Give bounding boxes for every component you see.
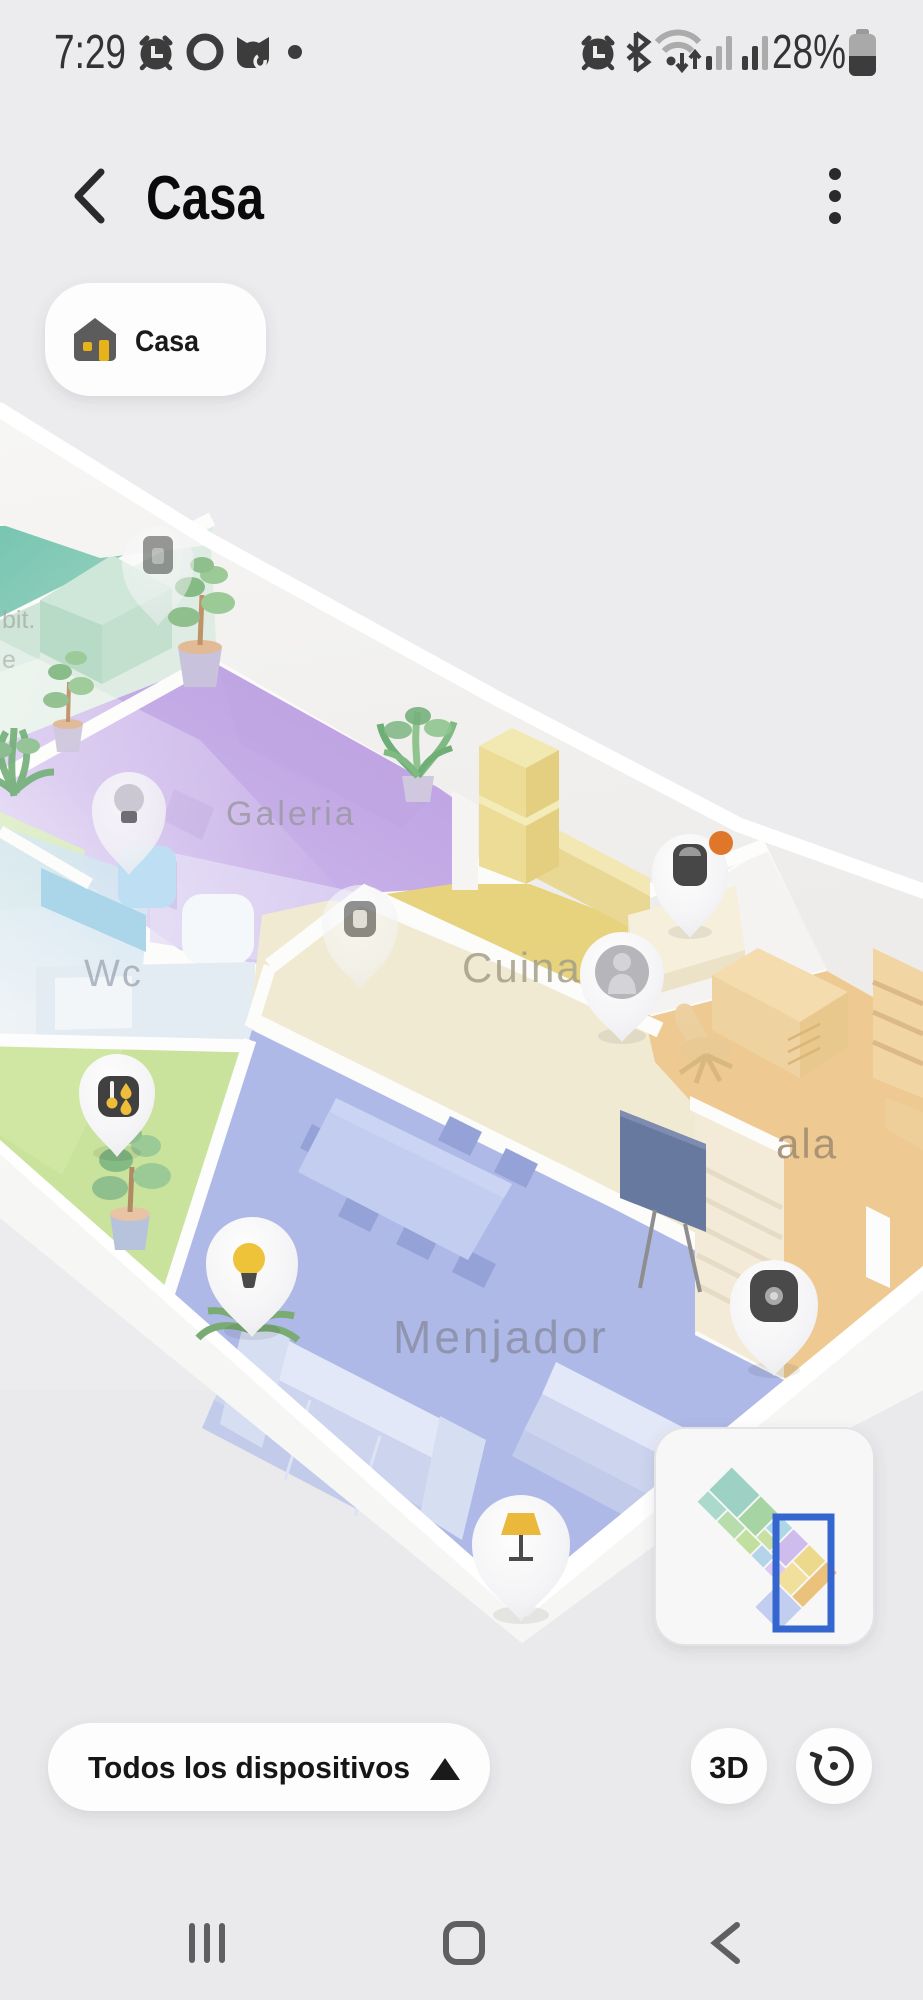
svg-text:Casa: Casa [135,325,199,358]
svg-text:Wc: Wc [84,953,143,995]
svg-text:Galeria: Galeria [226,795,357,833]
svg-text:Menjador: Menjador [393,1311,609,1363]
svg-text:Casa: Casa [146,164,264,233]
svg-text:ala: ala [776,1120,838,1167]
svg-text:7:29: 7:29 [54,26,126,79]
svg-text:3D: 3D [709,1750,749,1785]
svg-text:e: e [2,646,16,674]
svg-text:Cuina: Cuina [462,944,582,991]
svg-text:28%: 28% [772,26,846,79]
svg-text:bit.: bit. [2,606,35,634]
svg-text:Todos los dispositivos: Todos los dispositivos [88,1750,410,1785]
